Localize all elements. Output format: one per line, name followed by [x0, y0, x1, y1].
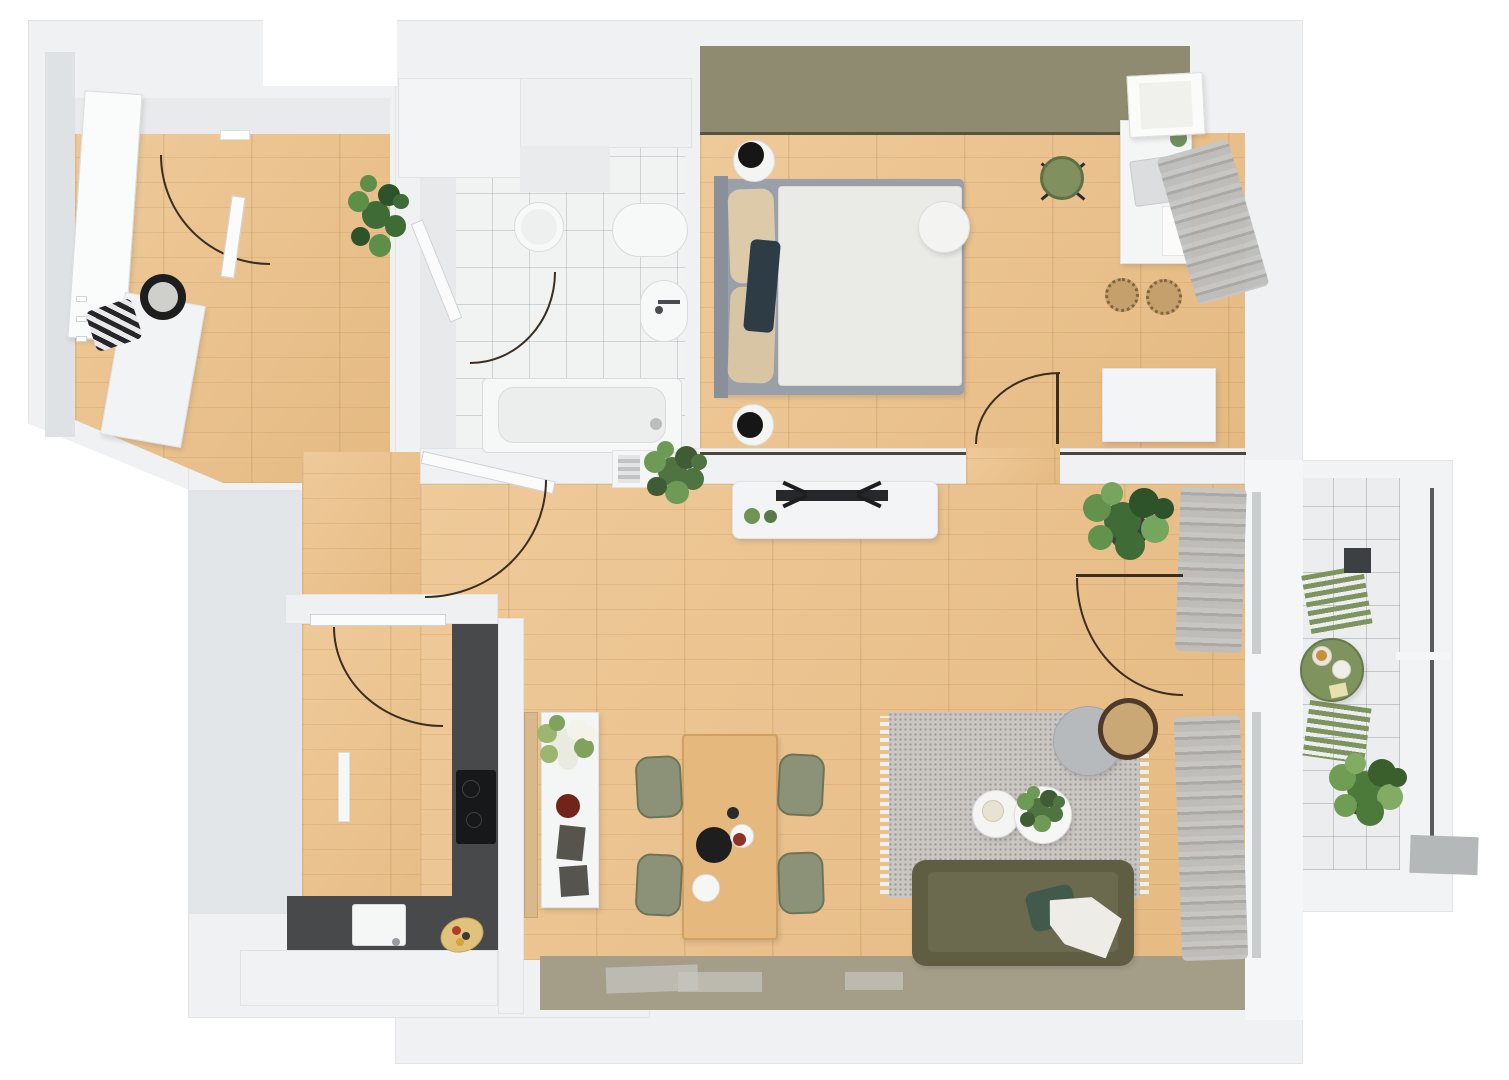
console-bench	[524, 712, 538, 918]
window-glass-lower	[1252, 712, 1261, 958]
pouf-rattan-b	[1146, 279, 1182, 315]
monstera-plant-leaf	[1141, 515, 1169, 543]
bedroom-accent-wall	[700, 46, 1190, 134]
bidet-faucet-knob	[655, 306, 663, 314]
bedroom-accent-wall-edge	[700, 132, 1190, 135]
dining-chair-1	[634, 755, 683, 819]
balcony-saucer	[1332, 660, 1351, 679]
entry-plant-leaf	[351, 227, 370, 246]
console-flowers-leaf	[549, 715, 565, 731]
monstera-plant-leaf	[1115, 530, 1145, 560]
lamp-bottom	[737, 412, 763, 438]
console-flowers-leaf	[582, 726, 597, 741]
board-food-a	[452, 926, 461, 935]
console-bowl	[556, 794, 580, 818]
balcony-wall-box	[1344, 548, 1371, 573]
bedroom-door-opening	[966, 448, 1060, 484]
curtain-lower	[1174, 715, 1248, 961]
coffee-table-plant	[1020, 792, 1064, 836]
monstera-plant-leaf	[1101, 482, 1123, 504]
cooktop-ring-a	[462, 780, 480, 798]
coffee-table-plant-leaf	[1020, 812, 1035, 827]
bathtub-basin	[498, 387, 666, 443]
kitchen-door-leaf	[310, 614, 446, 626]
tv-plant-b	[764, 510, 777, 523]
entry-plant-leaf	[393, 194, 409, 210]
shelf-plant-leaf	[647, 477, 667, 497]
shelf-plant	[648, 448, 706, 510]
kitchen-cabinet-front	[240, 950, 498, 1006]
dining-chair-3	[776, 753, 825, 817]
office-chair	[1040, 156, 1084, 200]
entry-wall-shelf	[220, 130, 250, 140]
console-decor-a	[556, 825, 585, 862]
dining-chair-2	[634, 853, 683, 917]
balcony-chair-top	[1301, 565, 1372, 635]
sink-basin-inner	[521, 209, 557, 245]
coffee-table-plant-leaf	[1033, 815, 1051, 833]
balcony-plant-leaf	[1388, 768, 1408, 788]
pouf-rattan-a	[1105, 278, 1139, 312]
coffee-plate	[982, 800, 1004, 822]
window-glass-upper	[1252, 492, 1261, 654]
facade-notch	[263, 14, 397, 86]
console-flowers	[540, 722, 596, 774]
bedroom-south-wall-edge-left	[700, 452, 966, 455]
rug-fringe-left	[880, 716, 889, 894]
balcony-plant-leaf	[1356, 798, 1384, 826]
balcony-door-leaf	[1076, 574, 1183, 577]
monstera-plant	[1086, 492, 1174, 566]
entry-plant-leaf	[385, 215, 406, 236]
wall-art-print	[1139, 81, 1193, 130]
lamp-top	[738, 142, 764, 168]
shelf-towels	[618, 455, 640, 483]
board-food-c	[456, 938, 464, 946]
balcony-plant	[1334, 762, 1406, 832]
duct-block-c	[520, 146, 610, 192]
dinner-red-item	[733, 833, 746, 846]
cooktop-ring-b	[466, 812, 482, 828]
toilet	[612, 203, 688, 257]
dinner-plate-black	[696, 827, 732, 863]
kitchen-faucet	[392, 938, 400, 946]
balcony-mat	[1409, 835, 1478, 875]
curtain-upper	[1175, 487, 1247, 653]
entry-plant	[352, 182, 408, 270]
bedroom-south-wall-edge-right	[1060, 452, 1246, 455]
kitchen-counter-side	[452, 624, 498, 900]
entry-plant-leaf	[360, 175, 377, 192]
console-flowers-leaf	[540, 745, 558, 763]
entry-left-wall-face	[45, 52, 75, 437]
entry-basket-blanket	[148, 282, 178, 312]
console-flowers-leaf	[558, 749, 579, 770]
shelf-plant-leaf	[691, 454, 707, 470]
tv-plant-a	[744, 508, 760, 524]
bedroom-wardrobe	[1102, 368, 1216, 442]
kitchen-left-wall-face	[188, 490, 302, 914]
bedroom-door-leaf	[1056, 374, 1059, 444]
duct-block-b	[520, 78, 692, 148]
entry-plant-leaf	[369, 234, 391, 256]
bidet	[640, 280, 688, 342]
shelf-plant-leaf	[657, 441, 674, 458]
bidet-faucet	[658, 300, 680, 304]
railing-glass	[1430, 488, 1434, 860]
dining-chair-4	[777, 851, 825, 915]
coffee-table-plant-leaf	[1053, 796, 1065, 808]
bathtub-drain	[650, 418, 662, 430]
console-decor-b	[559, 865, 589, 897]
coat-hook-c	[76, 336, 87, 342]
bed-side-table	[918, 201, 970, 253]
duct-block-a	[398, 78, 522, 178]
monstera-plant-leaf	[1153, 498, 1174, 519]
monstera-plant-leaf	[1088, 525, 1113, 550]
railing-divider	[1396, 652, 1450, 660]
sill-c	[845, 972, 903, 990]
coat-hook-a	[76, 296, 87, 302]
bed-headboard	[714, 176, 728, 398]
balcony-croissant	[1316, 650, 1327, 661]
shelf-plant-leaf	[665, 481, 688, 504]
dinner-plate-food	[692, 874, 720, 902]
kitchen-radiator	[338, 752, 350, 822]
kitchen-living-wall	[498, 618, 524, 1014]
balcony-plant-leaf	[1334, 794, 1358, 818]
sill-b	[678, 972, 762, 992]
dinner-cup	[727, 807, 739, 819]
floorplan-canvas	[0, 0, 1509, 1080]
balcony-plant-leaf	[1345, 753, 1366, 774]
